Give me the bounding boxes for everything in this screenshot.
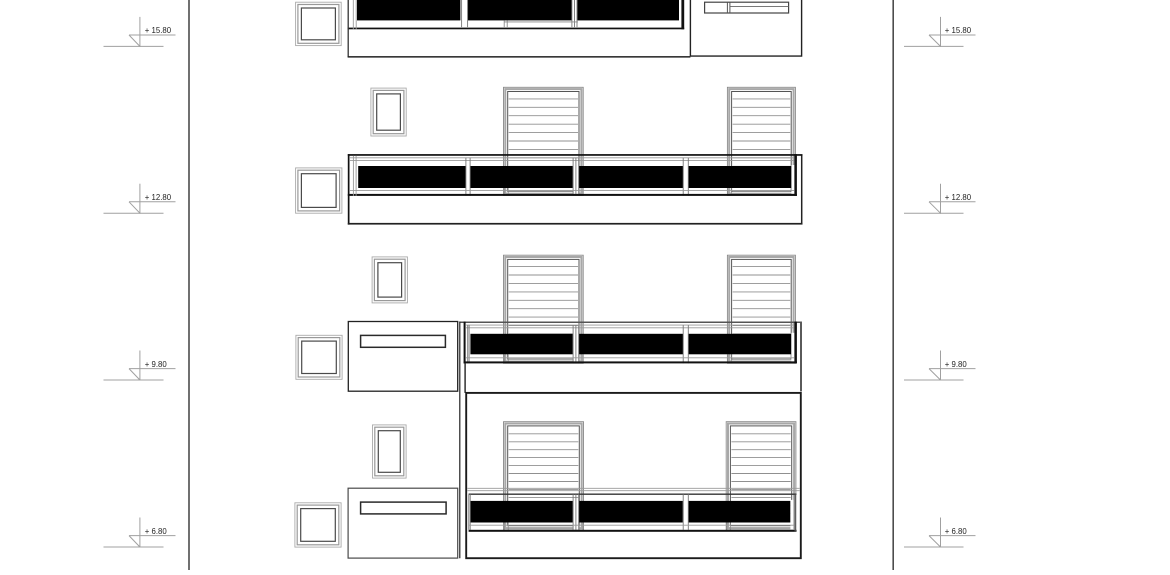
svg-text:+ 9.80: + 9.80 (145, 360, 168, 369)
svg-text:+ 6.80: + 6.80 (145, 527, 168, 536)
svg-text:+ 6.80: + 6.80 (945, 527, 968, 536)
svg-text:+ 15.80: + 15.80 (945, 26, 972, 35)
svg-text:+ 12.80: + 12.80 (945, 193, 972, 202)
svg-text:+ 15.80: + 15.80 (145, 26, 172, 35)
svg-text:+ 12.80: + 12.80 (145, 193, 172, 202)
svg-text:+ 9.80: + 9.80 (945, 360, 968, 369)
